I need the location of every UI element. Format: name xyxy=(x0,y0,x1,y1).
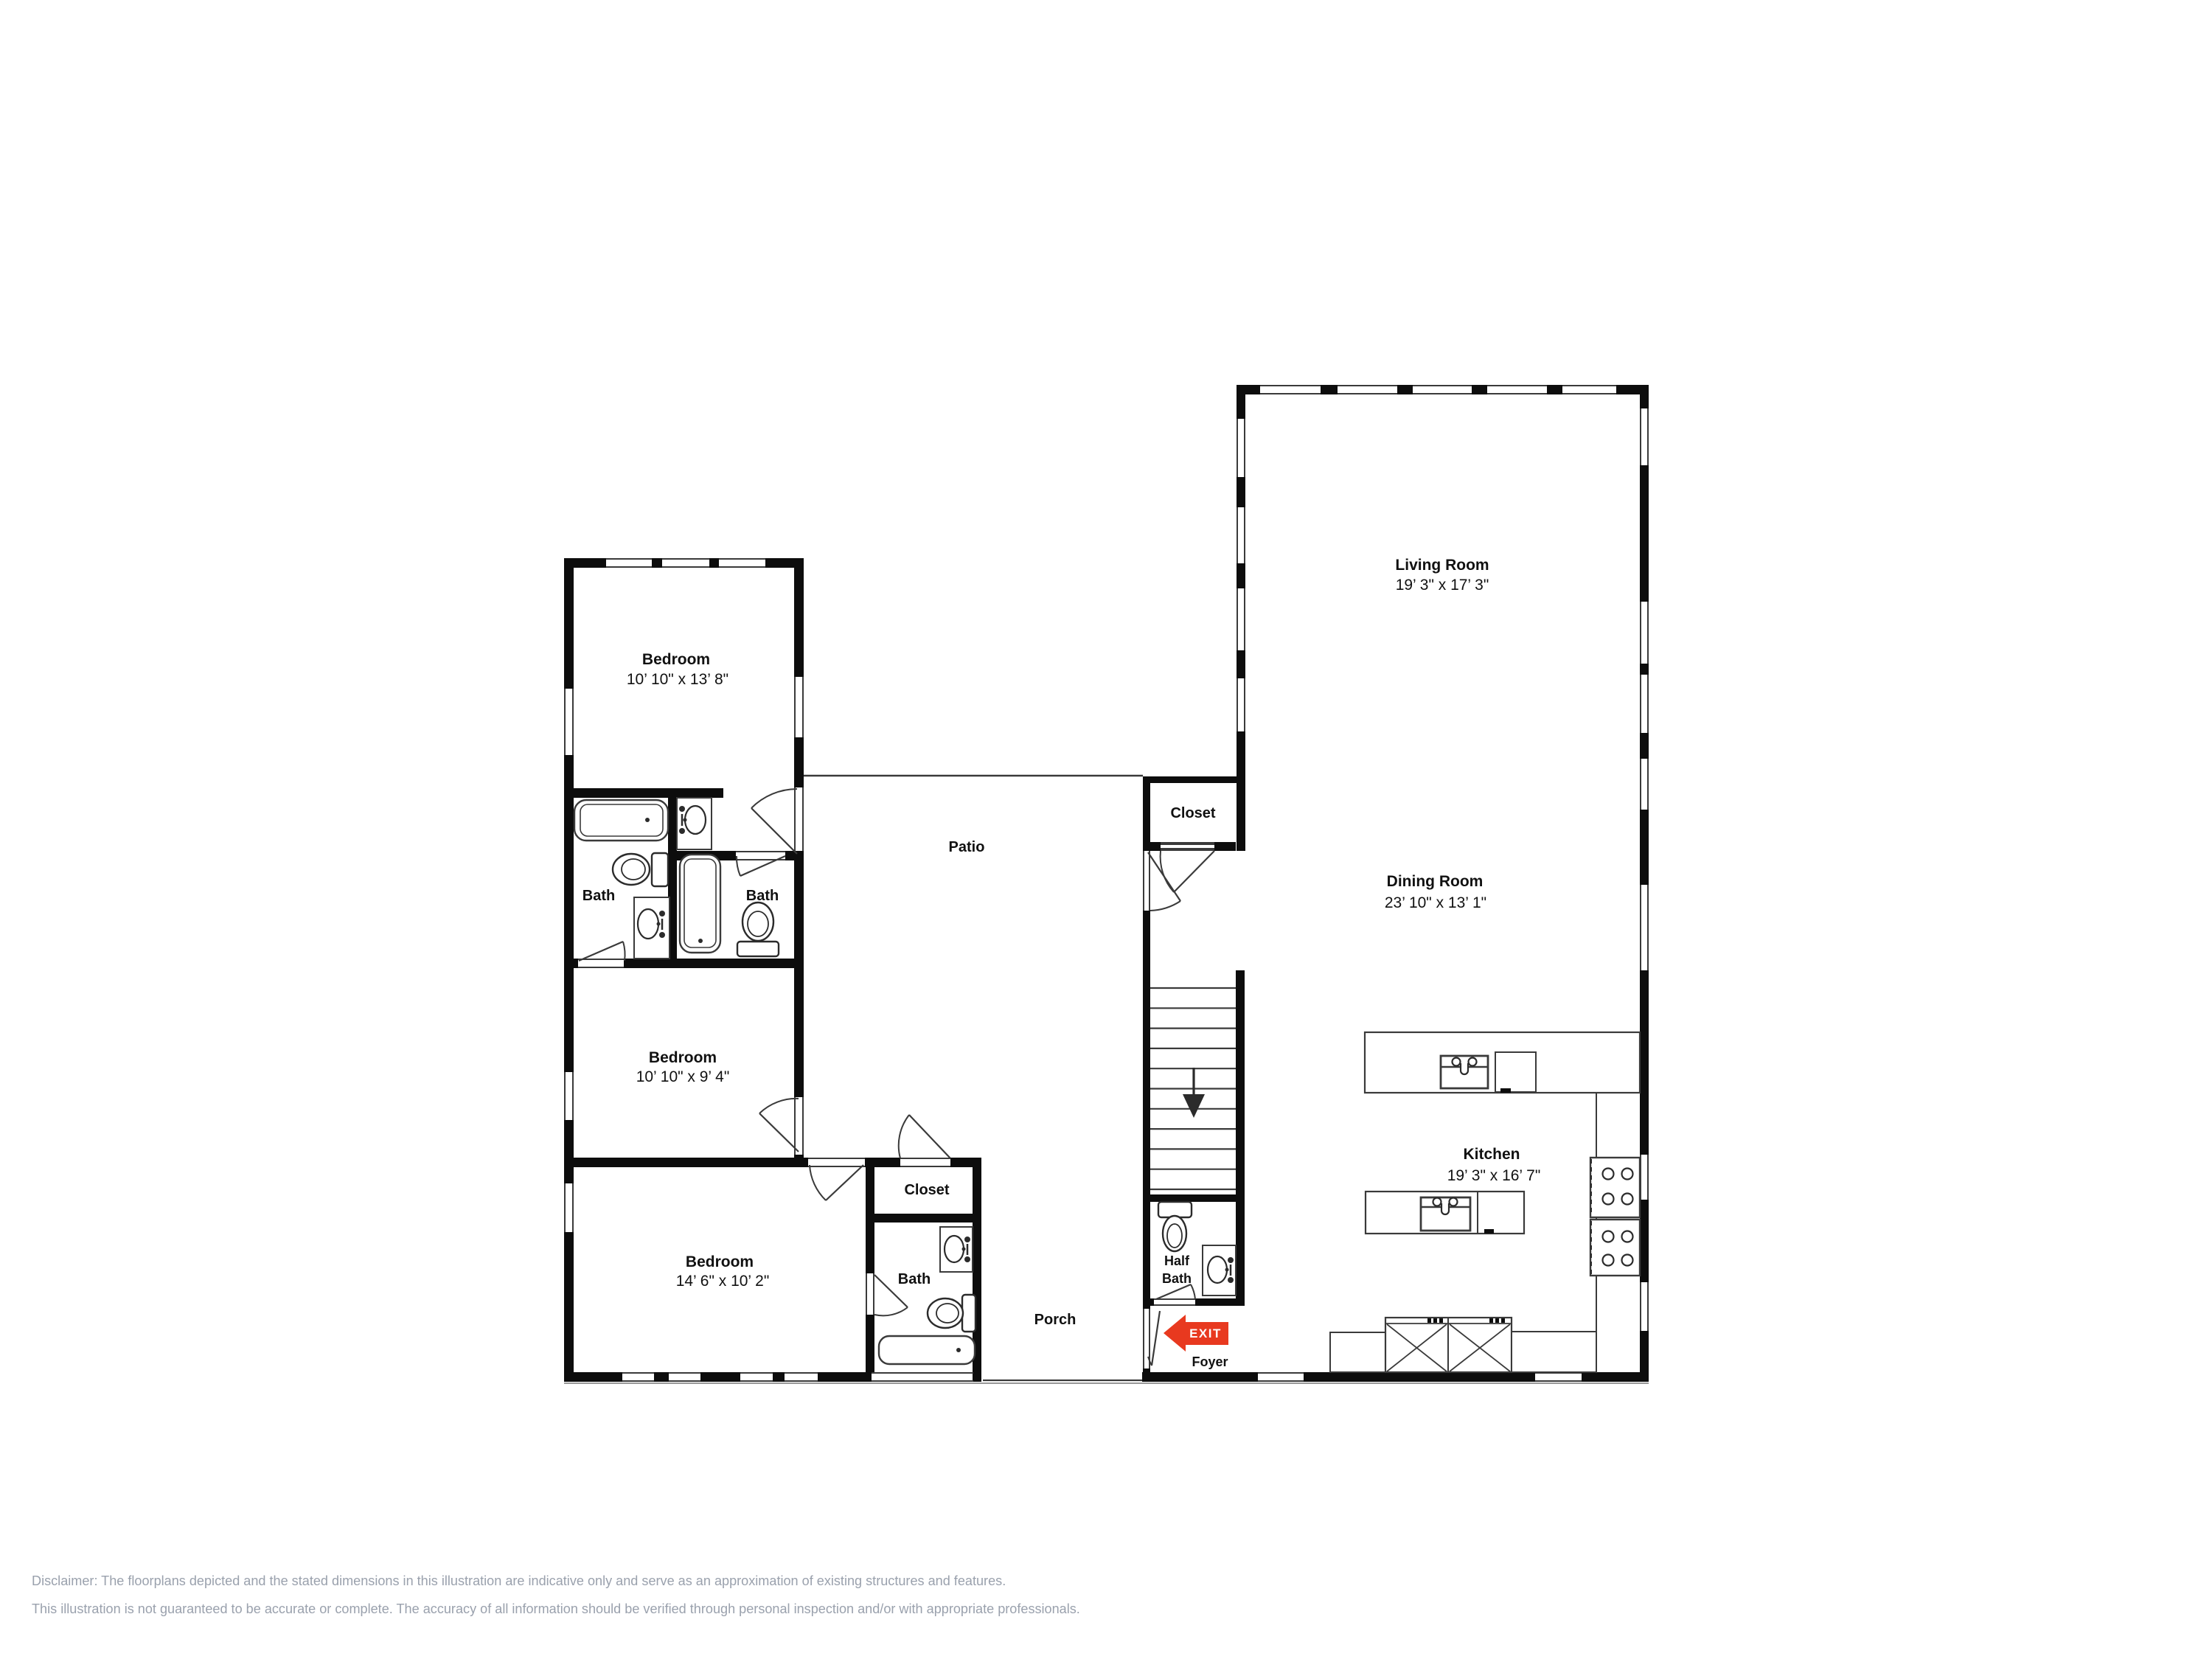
svg-text:19’ 3" x 17’ 3": 19’ 3" x 17’ 3" xyxy=(1396,577,1489,594)
svg-text:Closet: Closet xyxy=(1170,805,1215,821)
svg-text:Dining Room: Dining Room xyxy=(1387,873,1484,890)
svg-text:Bath: Bath xyxy=(582,888,615,904)
svg-text:Bedroom: Bedroom xyxy=(649,1049,717,1066)
svg-text:Patio: Patio xyxy=(949,839,985,855)
svg-text:Bath: Bath xyxy=(1162,1271,1192,1286)
svg-text:10’ 10" x 9’ 4": 10’ 10" x 9’ 4" xyxy=(636,1068,730,1085)
svg-text:Half: Half xyxy=(1164,1253,1190,1268)
svg-text:Bedroom: Bedroom xyxy=(642,651,710,668)
svg-text:10’ 10" x 13’ 8": 10’ 10" x 13’ 8" xyxy=(627,671,728,688)
svg-text:Disclaimer: The floorplans dep: Disclaimer: The floorplans depicted and … xyxy=(32,1573,1006,1588)
svg-text:Bath: Bath xyxy=(746,888,779,904)
svg-text:Bedroom: Bedroom xyxy=(686,1253,754,1270)
svg-text:Porch: Porch xyxy=(1034,1312,1077,1328)
svg-text:Living Room: Living Room xyxy=(1395,557,1489,574)
svg-text:23’ 10" x 13’ 1": 23’ 10" x 13’ 1" xyxy=(1385,894,1486,911)
svg-text:EXIT: EXIT xyxy=(1189,1326,1222,1340)
svg-text:Bath: Bath xyxy=(898,1271,931,1287)
svg-text:14’ 6" x 10’ 2": 14’ 6" x 10’ 2" xyxy=(676,1273,770,1290)
svg-text:19’ 3" x 16’ 7": 19’ 3" x 16’ 7" xyxy=(1447,1167,1541,1184)
svg-text:Kitchen: Kitchen xyxy=(1463,1146,1520,1163)
svg-text:This illustration is not guara: This illustration is not guaranteed to b… xyxy=(32,1601,1080,1616)
svg-text:Foyer: Foyer xyxy=(1192,1354,1228,1369)
svg-text:Closet: Closet xyxy=(904,1182,949,1198)
